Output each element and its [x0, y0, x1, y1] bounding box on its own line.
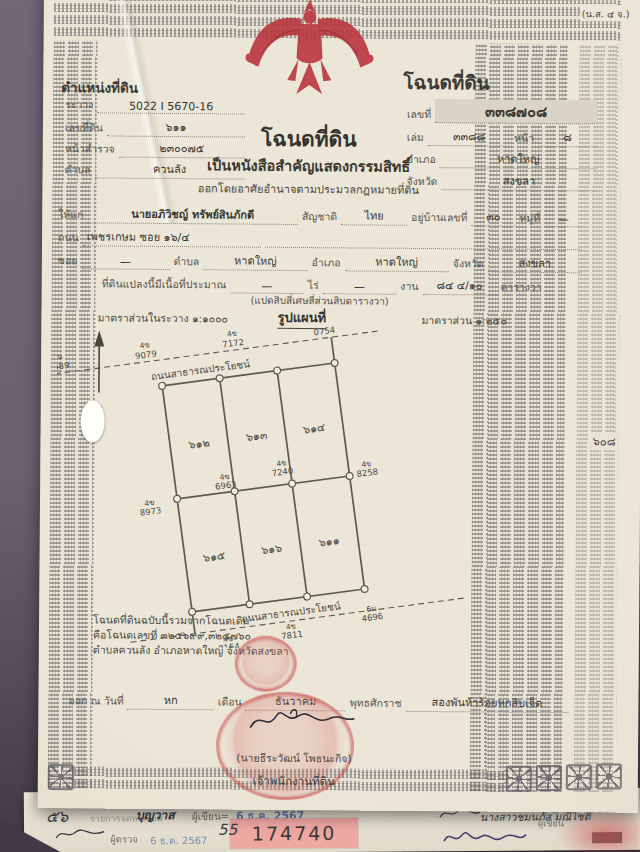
- survey-marker: [346, 472, 354, 480]
- survey-marker-label: 7172: [222, 337, 245, 350]
- survey-marker: [303, 593, 311, 601]
- corner-rosette: [596, 763, 622, 789]
- survey-marker: [246, 600, 254, 608]
- garuda-emblem: [239, 0, 380, 107]
- owner-name: นายอภิวิชญ์ ทรัพย์สินภักดี: [87, 204, 298, 225]
- parcel-label: เลขที่ดิน: [65, 119, 103, 136]
- road-top-label: ถนนสาธารณประโยชน์: [150, 357, 251, 382]
- red-stamp-blur: [556, 810, 640, 852]
- plot-number: ๖๑๑: [318, 534, 340, 550]
- survey-marker: [273, 367, 281, 375]
- house-no-value: ๓๐: [471, 207, 515, 226]
- plot-grid: ถนนสาธารณประโยชน์ถนนสาธารณประโยชน์6น2489…: [55, 324, 468, 649]
- doc-number-highlight: 174740: [230, 818, 358, 849]
- owner-amphoe-label: อำเภอ: [311, 254, 340, 271]
- survey-marker: [216, 374, 224, 382]
- survey-marker-label: 2489: [55, 360, 70, 373]
- soi-value: —: [81, 255, 169, 270]
- survey-marker: [173, 495, 181, 503]
- right-big-signature: [442, 827, 528, 848]
- small-red-stamp: [235, 636, 297, 692]
- page-label: หน้า: [514, 130, 534, 147]
- boundary-line: [162, 386, 195, 634]
- doc-number-prefix: 55: [218, 821, 237, 839]
- survey-marker-label: 0754: [313, 325, 336, 338]
- survey-marker: [158, 382, 166, 390]
- boundary-line: [177, 476, 349, 499]
- survey-marker-label: 9079: [135, 348, 158, 361]
- neighbor-parcel-right: ๖๐๘: [590, 432, 617, 450]
- soi-label: ซอย: [58, 252, 78, 269]
- main-title: โฉนดที่ดิน: [149, 121, 469, 157]
- house-no-label: อยู่บ้านเลขที่: [411, 209, 467, 226]
- road-label: ถนน: [58, 229, 79, 246]
- deed-number-value: ๓๓๘๗๐๘: [435, 99, 597, 124]
- plot-number: ๖๑๕: [202, 549, 226, 565]
- survey-marker: [331, 359, 339, 367]
- corner-rosette: [536, 765, 562, 791]
- issue-day: หก: [128, 691, 214, 711]
- plot-number: ๖๑๒: [188, 436, 211, 452]
- owner-province-label: จังหวัด: [453, 255, 484, 272]
- moo-value: —: [544, 213, 582, 227]
- deed-number-label: เลขที่: [407, 106, 431, 123]
- origin-line1: โฉนดที่ดินฉบับนี้รวมจากโฉนดเดิม: [93, 612, 289, 629]
- road-blank: [265, 234, 582, 250]
- checker-signature: [54, 826, 106, 842]
- owner-province-value: สงขลา: [488, 253, 582, 273]
- boundary-line: [331, 337, 364, 589]
- doc-number: 174740: [230, 818, 358, 845]
- subtitle2: ออกโดยอาศัยอำนาจตามประมวลกฎหมายที่ดิน: [118, 179, 498, 200]
- deed-block-title: โฉนดที่ดิน: [403, 67, 490, 98]
- wa-value: ๘๔ ๔/๑๐: [422, 276, 496, 296]
- checker-label: ผู้ตรวจ: [110, 831, 138, 846]
- survey-marker-label: 8973: [139, 505, 162, 518]
- signer-name: (นายธีระวัฒน์ โพธนะกิจ): [184, 749, 404, 768]
- ravang-value: 5022 I 5670-16: [97, 99, 245, 114]
- photo-of-land-deed: ๕๖ รายการจดทะเบียน บุญวาส ผู้เขียน= 6 ธ.…: [0, 0, 640, 852]
- survey-label: หน้าสำรวจ: [65, 140, 115, 157]
- north-arrow-head: [94, 330, 104, 346]
- issue-year: สองพันห้าร้อยหกสิบเจ็ด: [406, 693, 569, 713]
- page-value: ๘: [538, 128, 597, 147]
- ravang-label: ระวาง: [65, 96, 93, 113]
- tambon-label: ตำบล: [65, 161, 91, 178]
- wa-label: ตารางวา: [500, 279, 541, 296]
- road-value: เพชรเกษม ซอย ๑๖/๔: [83, 227, 261, 247]
- deed-sheet: (น.ส. ๔ จ.) ตำแหน่งที่ดิน ระวาง: [38, 0, 640, 813]
- rai-label: ไร่: [308, 277, 319, 294]
- nationality-value: ไทย: [341, 206, 407, 226]
- owner-amphoe-value: หาดใหญ่: [344, 252, 448, 272]
- given-label: ให้แก่: [58, 206, 83, 223]
- survey-marker-label: 4696: [361, 611, 384, 624]
- plot-number: ๖๑๖: [260, 542, 282, 558]
- corner-rosette: [506, 766, 532, 792]
- ngan-label: งาน: [400, 278, 418, 295]
- survey-marker: [361, 585, 369, 593]
- survey-marker-label: 8258: [356, 466, 379, 479]
- signer-title: เจ้าพนักงานที่ดิน: [184, 771, 404, 791]
- subtitle: เป็นหนังสือสำคัญแสดงกรรมสิทธิ์: [119, 153, 499, 179]
- form-code: (น.ส. ๔ จ.): [580, 6, 632, 21]
- checker-date-stamp: 6 ธ.ค. 2567: [150, 833, 207, 848]
- survey-marker: [288, 480, 296, 488]
- corner-rosette: [48, 764, 74, 790]
- owner-tambon-value: หาดใหญ่: [203, 251, 307, 271]
- nationality-label: สัญชาติ: [302, 208, 337, 225]
- plot-number: ๖๑๓: [245, 429, 268, 445]
- officer-signature: [246, 706, 358, 737]
- corner-rosette: [566, 764, 592, 790]
- plot-number: ๖๑๔: [302, 421, 326, 437]
- moo-label: หมู่ที่: [519, 210, 540, 227]
- owner-tambon-label: ตำบล: [173, 253, 199, 270]
- cadastral-map: ถนนสาธารณประโยชน์ถนนสาธารณประโยชน์6น2489…: [55, 324, 468, 653]
- issue-date-label: ออก ณ วันที่: [68, 692, 124, 709]
